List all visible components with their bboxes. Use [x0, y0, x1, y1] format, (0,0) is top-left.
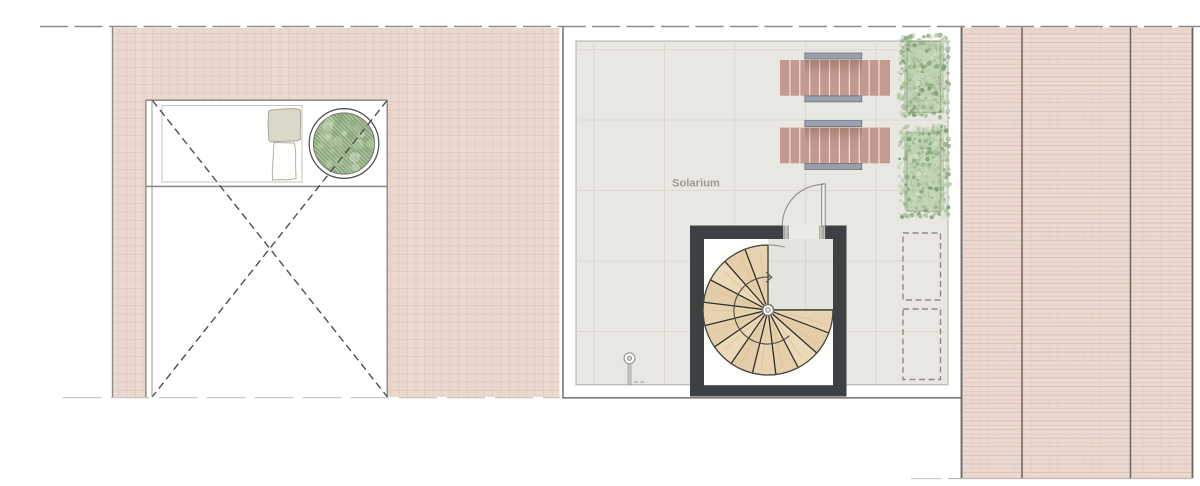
- svg-text:Solarium: Solarium: [672, 178, 720, 190]
